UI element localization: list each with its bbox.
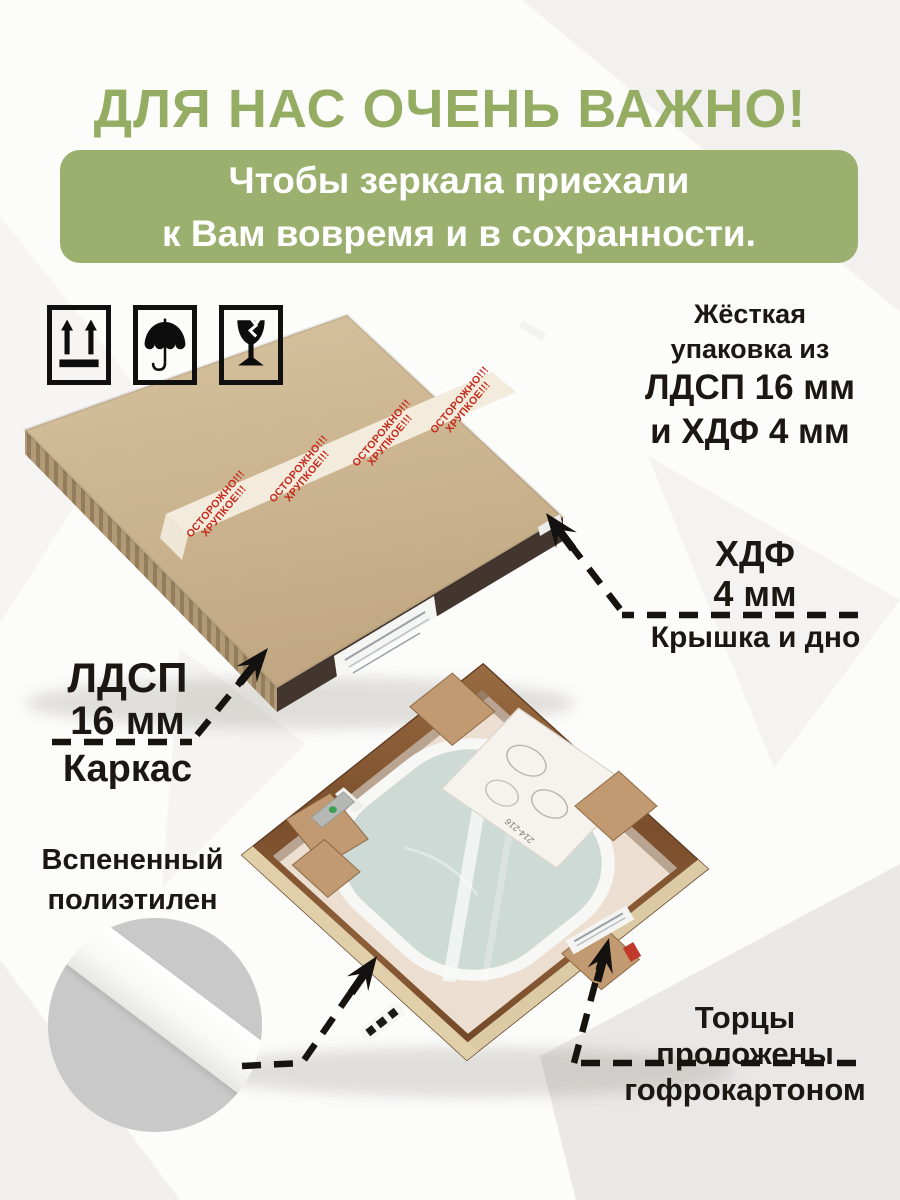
foam-tube — [48, 918, 262, 1120]
ldsp-material: ЛДСП — [40, 656, 215, 700]
foam-sample-circle — [48, 918, 262, 1132]
note-line: ЛДСП 16 мм — [640, 366, 860, 410]
keep-dry-umbrella-icon — [133, 305, 197, 385]
hdf-thickness: 4 мм — [660, 574, 850, 614]
page-title: ДЛЯ НАС ОЧЕНЬ ВАЖНО! — [0, 78, 900, 140]
rigid-pack-note: Жёсткая упаковка из ЛДСП 16 мм и ХДФ 4 м… — [640, 296, 860, 454]
foam-line: Вспененный — [30, 840, 235, 880]
edges-callout: Торцы проложены гофрокартоном — [615, 1000, 875, 1108]
note-line: упаковка из — [640, 332, 860, 366]
hdf-material: ХДФ — [660, 534, 850, 574]
note-line: Жёсткая — [640, 296, 860, 332]
subtitle-banner: Чтобы зеркала приехали к Вам вовремя и в… — [60, 150, 858, 263]
package-top-label — [519, 320, 546, 341]
foam-line: полиэтилен — [30, 880, 235, 920]
ldsp-thickness: 16 мм — [40, 700, 215, 742]
box-edge-label — [358, 1001, 406, 1043]
infographic-page: ОСТОРОЖНО!!! ХРУПКОЕ!!! ОСТОРОЖНО!!! ХРУ… — [0, 0, 900, 1200]
ldsp-callout: ЛДСП 16 мм — [40, 656, 215, 742]
banner-line: к Вам вовремя и в сохранности. — [162, 207, 756, 260]
banner-line: Чтобы зеркала приехали — [229, 154, 690, 207]
packaging-icons-row — [47, 305, 305, 385]
this-way-up-icon — [47, 305, 111, 385]
fragile-glass-icon — [219, 305, 283, 385]
edges-line: гофрокартоном — [615, 1072, 875, 1108]
edges-line: проложены — [615, 1036, 875, 1072]
edges-line: Торцы — [615, 1000, 875, 1036]
hdf-callout: ХДФ 4 мм — [660, 534, 850, 614]
note-line: и ХДФ 4 мм — [640, 410, 860, 454]
hdf-caption: Крышка и дно — [643, 621, 868, 655]
ldsp-caption: Каркас — [40, 748, 215, 791]
foam-callout: Вспененный полиэтилен — [30, 840, 235, 920]
